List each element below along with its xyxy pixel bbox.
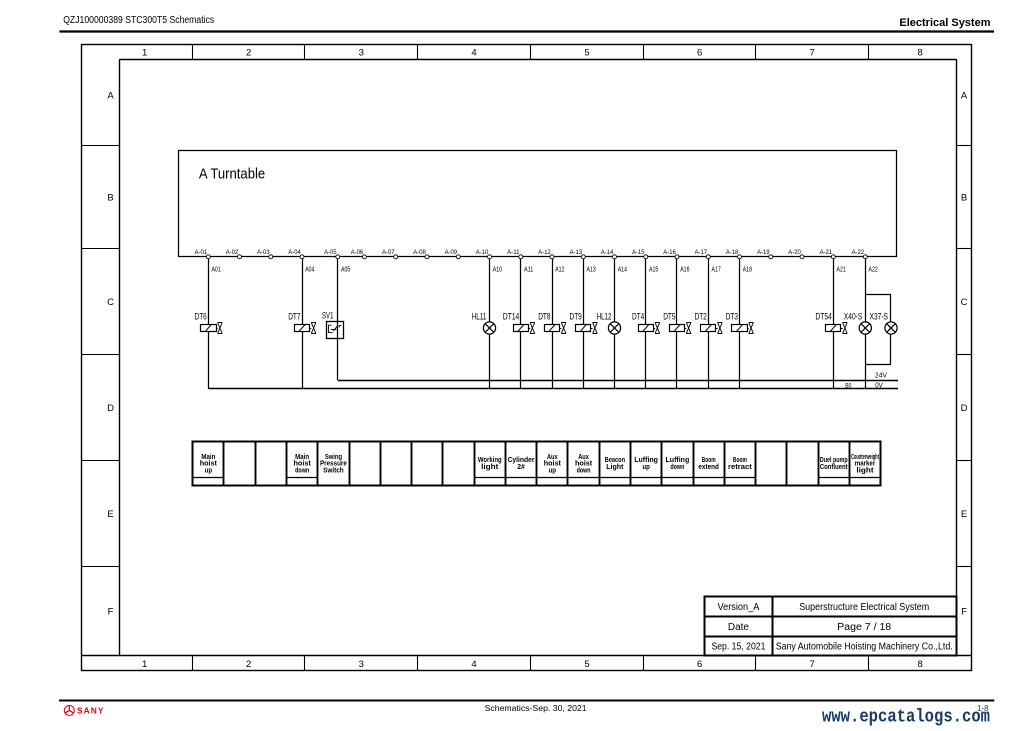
svg-text:Boom: Boom [702,457,716,464]
svg-text:A-11: A-11 [507,249,520,256]
svg-text:A-01: A-01 [195,249,208,256]
svg-text:8: 8 [918,48,923,59]
svg-text:5: 5 [584,48,589,59]
svg-text:SV1: SV1 [322,310,334,321]
svg-text:A-09: A-09 [445,249,458,256]
svg-text:DT54: DT54 [815,311,831,322]
svg-text:B0: B0 [845,383,852,390]
svg-text:A-14: A-14 [601,249,614,256]
svg-text:2: 2 [246,659,251,670]
svg-text:A14: A14 [618,267,627,274]
svg-text:2: 2 [246,48,251,59]
svg-text:C: C [961,297,968,308]
svg-text:Schematics-Sep. 30, 2021: Schematics-Sep. 30, 2021 [485,703,587,713]
svg-text:A-15: A-15 [632,249,645,256]
svg-text:DT14: DT14 [503,311,519,322]
svg-text:X40-S: X40-S [844,311,863,322]
svg-text:SANY: SANY [77,705,104,715]
svg-text:A12: A12 [555,267,564,274]
svg-text:down: down [577,467,591,474]
svg-text:www.epcatalogs.com: www.epcatalogs.com [822,707,990,727]
svg-text:Date: Date [728,622,750,633]
svg-text:A-13: A-13 [570,249,583,256]
svg-text:DT7: DT7 [288,311,300,322]
svg-text:up: up [642,464,650,471]
svg-text:A-04: A-04 [288,249,301,256]
svg-text:D: D [107,403,114,414]
svg-text:retract: retract [728,464,752,471]
svg-text:DT2: DT2 [695,311,707,322]
svg-text:3: 3 [359,48,364,59]
svg-text:Luffing: Luffing [634,457,658,464]
svg-text:Confluent: Confluent [820,464,848,471]
svg-text:A-21: A-21 [820,249,833,256]
svg-text:light: light [481,464,499,471]
svg-text:D: D [961,403,968,414]
svg-text:DT6: DT6 [195,311,207,322]
svg-text:Sany Automobile Hoisting Machi: Sany Automobile Hoisting Machinery Co.,L… [776,642,953,653]
svg-text:A01: A01 [212,267,221,274]
svg-text:A18: A18 [743,267,752,274]
svg-text:1: 1 [142,659,147,670]
svg-text:DT4: DT4 [632,311,644,322]
svg-text:B: B [107,193,113,204]
svg-text:down: down [295,467,309,474]
svg-text:A-19: A-19 [757,249,770,256]
svg-text:4: 4 [471,48,476,59]
svg-text:A15: A15 [649,267,658,274]
svg-text:A-12: A-12 [538,249,551,256]
svg-text:Superstructure Electrical Syst: Superstructure Electrical System [799,602,929,613]
svg-text:E: E [961,509,967,520]
svg-text:A Turntable: A Turntable [199,165,265,182]
svg-text:Light: Light [606,464,624,471]
svg-text:DT5: DT5 [663,311,675,322]
svg-text:Duel pump: Duel pump [820,457,848,464]
svg-text:A22: A22 [869,267,878,274]
svg-text:light: light [856,467,874,474]
svg-text:A-10: A-10 [476,249,489,256]
svg-text:A-02: A-02 [226,249,239,256]
svg-text:up: up [205,467,213,474]
svg-text:HL11: HL11 [472,311,487,322]
svg-text:A-06: A-06 [351,249,364,256]
svg-text:1-8: 1-8 [977,704,989,713]
svg-text:A-05: A-05 [324,249,337,256]
svg-text:F: F [108,607,114,618]
svg-text:1: 1 [142,48,147,59]
svg-text:HL12: HL12 [597,311,612,322]
svg-text:Switch: Switch [323,467,344,474]
svg-text:Electrical System: Electrical System [899,17,990,29]
svg-text:A-03: A-03 [257,249,270,256]
svg-text:X37-S: X37-S [870,311,889,322]
svg-text:Boom: Boom [733,457,747,464]
svg-text:A10: A10 [493,267,502,274]
svg-text:up: up [549,467,557,474]
svg-text:A-08: A-08 [413,249,426,256]
svg-text:E: E [107,509,113,520]
svg-text:A05: A05 [341,267,350,274]
svg-text:6: 6 [697,659,702,670]
svg-text:A16: A16 [680,267,689,274]
svg-text:QZJ100000389 STC300T5 Schemati: QZJ100000389 STC300T5 Schematics [63,15,214,26]
svg-text:Sep. 15, 2021: Sep. 15, 2021 [711,642,765,653]
svg-text:5: 5 [584,659,589,670]
svg-text:A11: A11 [524,267,533,274]
svg-text:Page 7 / 18: Page 7 / 18 [837,622,891,633]
svg-text:Working: Working [478,457,502,464]
svg-text:A17: A17 [712,267,721,274]
svg-text:B: B [961,193,967,204]
svg-text:A-17: A-17 [695,249,708,256]
svg-text:A13: A13 [587,267,596,274]
svg-text:extend: extend [698,464,719,471]
svg-text:C: C [107,297,114,308]
svg-text:A-20: A-20 [788,249,801,256]
svg-text:Version_A: Version_A [717,602,759,613]
svg-text:DT9: DT9 [570,311,582,322]
svg-text:6: 6 [697,48,702,59]
svg-text:A-18: A-18 [726,249,739,256]
svg-text:A21: A21 [837,267,846,274]
svg-text:down: down [670,464,684,471]
svg-text:7: 7 [810,48,815,59]
svg-text:A-07: A-07 [382,249,395,256]
svg-text:3: 3 [359,659,364,670]
svg-text:8: 8 [918,659,923,670]
svg-text:Luffing: Luffing [666,457,690,464]
svg-text:DT3: DT3 [726,311,738,322]
svg-text:F: F [961,607,967,618]
svg-text:7: 7 [810,659,815,670]
svg-text:Cylinder: Cylinder [508,457,535,464]
svg-text:A-16: A-16 [663,249,676,256]
svg-text:0V: 0V [875,381,883,390]
svg-text:4: 4 [471,659,476,670]
svg-text:A-22: A-22 [852,249,865,256]
svg-text:24V: 24V [875,370,887,379]
svg-text:2#: 2# [517,464,525,471]
svg-text:A04: A04 [305,267,314,274]
svg-text:A: A [961,90,968,101]
svg-text:A: A [107,90,114,101]
svg-text:Beacon: Beacon [605,457,626,464]
svg-text:DT8: DT8 [538,311,550,322]
